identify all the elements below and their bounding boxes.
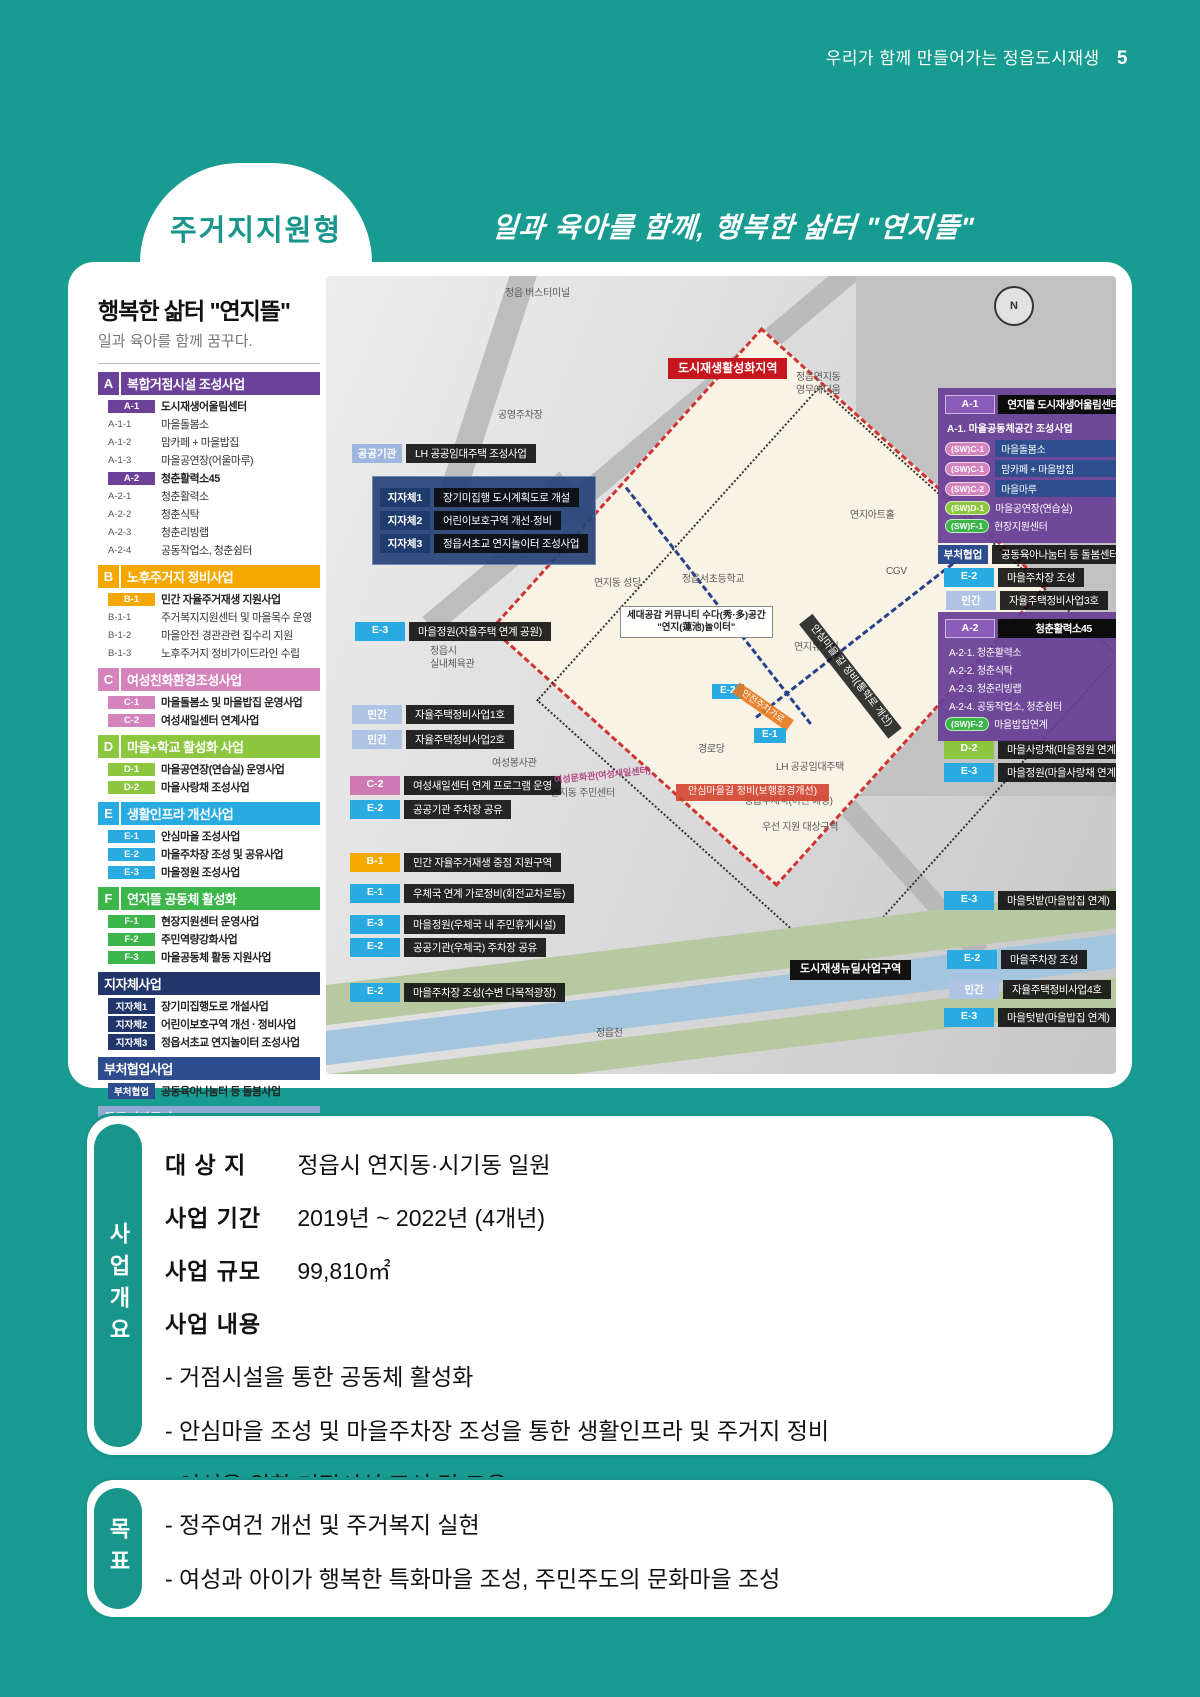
- map-callout: 공공기관LH 공공임대주택 조성사업: [352, 444, 536, 463]
- map-legend: 행복한 삶터 "연지뜰" 일과 육아를 함께 꿈꾸다. A복합거점시설 조성사업…: [98, 292, 320, 1204]
- map-callout: 지자체2어린이보호구역 개선·정비: [380, 511, 588, 530]
- legend-item-code: D-1: [108, 763, 155, 776]
- legend-item-code: B-1-3: [108, 648, 155, 659]
- legend-item-code: A-2-1: [108, 491, 155, 502]
- map-callout: 민간자율주택정비사업4호: [949, 980, 1111, 999]
- legend-item: E-2마을주차장 조성 및 공유사업: [108, 846, 320, 862]
- panel-item-pill: (SW)F-1: [945, 519, 989, 533]
- legend-section-letter: D: [98, 735, 119, 758]
- panel-item-label: 마을공연장(연습실): [995, 500, 1072, 515]
- legend-item: A-1-3마을공연장(어울마루): [108, 452, 320, 468]
- map-callout-label: 민간 자율주거재생 중점 지원구역: [404, 853, 561, 872]
- legend-divider: [98, 363, 320, 364]
- map-callout: E-2마을주차장 조성: [947, 950, 1087, 969]
- map-callout-code: E-2: [947, 950, 997, 969]
- legend-item: D-2마을사랑채 조성사업: [108, 779, 320, 795]
- legend-item-label: 마을돌봄소: [161, 416, 209, 432]
- legend-section-header: B노후주거지 정비사업: [98, 565, 320, 588]
- legend-item-code: F-3: [108, 951, 155, 964]
- map-label-plain: 공영주차장: [498, 410, 543, 423]
- overview-label: 사업 규모: [165, 1252, 277, 1286]
- overview-row-period: 사업 기간 2019년 ~ 2022년 (4개년): [165, 1199, 1083, 1233]
- legend-item: 부처협업공동육아나눔터 등 돌봄사업: [108, 1083, 320, 1099]
- panel-title: 연지뜰 도시재생어울림센터: [998, 395, 1116, 414]
- legend-item-code: C-1: [108, 696, 155, 709]
- legend-item-label: 노후주거지 정비가이드라인 수립: [161, 645, 300, 661]
- legend-section-letter: C: [98, 668, 119, 691]
- legend-item-label: 어린이보호구역 개선 · 정비사업: [161, 1016, 296, 1032]
- legend-item-code: 부처협업: [108, 1083, 155, 1099]
- legend-section-header: A복합거점시설 조성사업: [98, 372, 320, 395]
- legend-item-label: 마을사랑채 조성사업: [161, 779, 249, 795]
- overview-bullet: - 거점시설을 통한 공동체 활성화: [165, 1358, 1083, 1392]
- type-badge-label: 주거지지원형: [170, 207, 342, 249]
- map-callout: E-3마을텃밭(마을밥집 연계): [944, 891, 1116, 910]
- legend-item: B-1-2마을안전 경관관련 집수리 지원: [108, 627, 320, 643]
- legend-section-letter: A: [98, 372, 119, 395]
- map-label-plain: 여성봉사관: [492, 758, 537, 771]
- map-callout-label: 공공기관(우체국) 주차장 공유: [404, 938, 546, 957]
- legend-item: E-1안심마을 조성사업: [108, 828, 320, 844]
- page-number: 5: [1117, 48, 1128, 69]
- map-label-plain: 연지동 성당: [594, 578, 641, 591]
- tagline-script: 일과 육아를 함께, 행복한 삶터 "연지뜰": [491, 206, 976, 246]
- map-callout-code: E-3: [350, 915, 400, 934]
- page: { "page": { "header_title": "우리가 함께 만들어가…: [0, 0, 1200, 1697]
- project-overview-card: 사업개요 대 상 지 정읍시 연지동·시기동 일원 사업 기간 2019년 ~ …: [84, 1113, 1116, 1458]
- legend-item-label: 주거복지지원센터 및 마을목수 운영: [161, 609, 312, 625]
- legend-item-code: F-2: [108, 933, 155, 946]
- map-callout: E-3마을정원(우체국 내 주민휴게시설): [350, 915, 565, 934]
- legend-section: E생활인프라 개선사업E-1안심마을 조성사업E-2마을주차장 조성 및 공유사…: [98, 802, 320, 880]
- legend-section-title: 노후주거지 정비사업: [121, 565, 320, 588]
- map-callout-label: 마을사랑채(마을정원 연계): [998, 740, 1116, 759]
- compass-icon: N: [994, 286, 1034, 326]
- legend-item-code: A-1-2: [108, 437, 155, 448]
- map-callout-label: 자율주택정비사업1호: [406, 705, 514, 724]
- legend-item-label: 청춘활력소: [161, 488, 209, 504]
- page-header: 우리가 함께 만들어가는 정읍도시재생 5: [826, 44, 1128, 70]
- panel-item-label: 마을돌봄소: [995, 440, 1116, 457]
- map-callout: 민간자율주택정비사업3호: [946, 591, 1108, 610]
- goal-bullet: - 정주여건 개선 및 주거복지 실현: [165, 1506, 1083, 1540]
- map-callout-label: 자율주택정비사업3호: [1000, 591, 1108, 610]
- panel-header: A-2청춘활력소45: [945, 619, 1116, 638]
- map-callout-label: 우체국 연계 가로정비(회전교차로등): [404, 884, 574, 903]
- goal-tab-label: 목표: [102, 1517, 134, 1581]
- legend-item-code: C-2: [108, 714, 155, 727]
- legend-item-label: 청춘리빙랩: [161, 524, 209, 540]
- legend-item: A-2-2청춘식탁: [108, 506, 320, 522]
- legend-item-label: 마을주차장 조성 및 공유사업: [161, 846, 283, 862]
- legend-section: A복합거점시설 조성사업A-1도시재생어울림센터A-1-1마을돌봄소A-1-2맘…: [98, 372, 320, 558]
- legend-item-code: A-2-2: [108, 509, 155, 520]
- legend-item-label: 마을정원 조성사업: [161, 864, 240, 880]
- panel-item-pill: (SW)F-2: [945, 717, 989, 731]
- map-label-plain: 경로당: [698, 744, 725, 757]
- legend-section-title: 여성친화환경조성사업: [121, 668, 320, 691]
- panel-item-label: 맘카페 + 마을밥집: [995, 460, 1116, 477]
- map-label-plain: 정읍시 실내체육관: [430, 646, 475, 671]
- map-callout-label: 마을텃밭(마을밥집 연계): [998, 1008, 1116, 1027]
- map-label-plain: 연지아트홀: [850, 510, 895, 523]
- panel-subtitle: A-1. 마을공동체공간 조성사업: [947, 420, 1116, 435]
- map-label-plain: 정읍 버스터미널: [505, 288, 570, 301]
- legend-section-header: 부처협업사업: [98, 1057, 320, 1080]
- map-callout-label: 자율주택정비사업4호: [1003, 980, 1111, 999]
- overview-label: 대 상 지: [165, 1146, 277, 1180]
- legend-section-letter: F: [98, 887, 119, 910]
- legend-item-label: 정읍서초교 연지놀이터 조성사업: [161, 1034, 300, 1050]
- map-label-red: 도시재생활성화지역: [668, 358, 787, 379]
- legend-item-label: 청춘식탁: [161, 506, 199, 522]
- map-callout: 민간자율주택정비사업1호: [352, 705, 514, 724]
- panel-item-label: 마을마루: [995, 480, 1116, 497]
- map-label-plain: LH 공공임대주택: [776, 762, 844, 775]
- legend-item-label: 장기미집행도로 개설사업: [161, 998, 268, 1014]
- panel-item-line: A-2-2. 청춘식탁: [949, 662, 1116, 677]
- goal-bullets: - 정주여건 개선 및 주거복지 실현- 여성과 아이가 행복한 특화마을 조성…: [165, 1506, 1083, 1594]
- map-callout: 부처협업공동육아나눔터 등 돌봄센터: [938, 545, 1116, 564]
- goal-card: 목표 - 정주여건 개선 및 주거복지 실현- 여성과 아이가 행복한 특화마을…: [84, 1477, 1116, 1620]
- legend-section-header: 지자체사업: [98, 972, 320, 995]
- legend-item: F-1현장지원센터 운영사업: [108, 913, 320, 929]
- panel-item: (SW)F-1현장지원센터: [945, 518, 1116, 533]
- map-callout: E-3마을정원(자율주택 연계 공원): [355, 622, 551, 641]
- site-map: N 공공기관LH 공공임대주택 조성사업E-3마을정원(자율주택 연계 공원)민…: [326, 276, 1116, 1074]
- legend-item: A-2청춘활력소45: [108, 470, 320, 486]
- panel-a2: A-2청춘활력소45A-2-1. 청춘활력소A-2-2. 청춘식탁A-2-3. …: [938, 612, 1116, 741]
- legend-item-code: E-1: [108, 830, 155, 843]
- map-callout-label: 마을정원(마을사랑채 연계): [998, 763, 1116, 782]
- municipal-projects-box: 지자체1장기미집행 도시계획도로 개설지자체2어린이보호구역 개선·정비지자체3…: [372, 476, 596, 565]
- map-callout-label: 장기미집행 도시계획도로 개설: [434, 488, 579, 507]
- legend-section-title: 생활인프라 개선사업: [121, 802, 320, 825]
- legend-item: 지자체1장기미집행도로 개설사업: [108, 998, 320, 1014]
- map-callout-label: 여성새일센터 연계 프로그램 운영: [404, 776, 561, 795]
- legend-item-code: B-1-1: [108, 612, 155, 623]
- overview-row-scale: 사업 규모 99,810㎡: [165, 1252, 1083, 1286]
- panel-item-label: 현장지원센터: [994, 518, 1047, 533]
- legend-item: 지자체2어린이보호구역 개선 · 정비사업: [108, 1016, 320, 1032]
- legend-item-code: 지자체1: [108, 998, 155, 1014]
- legend-item-code: A-1-3: [108, 455, 155, 466]
- map-label-black: 도시재생뉴딜사업구역: [790, 960, 911, 980]
- legend-section-letter: E: [98, 802, 119, 825]
- legend-section: B노후주거지 정비사업B-1민간 자율주거재생 지원사업B-1-1주거복지지원센…: [98, 565, 320, 661]
- legend-sections: A복합거점시설 조성사업A-1도시재생어울림센터A-1-1마을돌봄소A-1-2맘…: [98, 372, 320, 1197]
- map-callout-code: 민간: [352, 730, 402, 749]
- map-callout-code: E-3: [355, 622, 405, 641]
- legend-item-code: 지자체2: [108, 1016, 155, 1032]
- legend-item-label: 공동육아나눔터 등 돌봄사업: [161, 1083, 281, 1099]
- overview-value: 99,810㎡: [297, 1258, 390, 1284]
- legend-item: A-1도시재생어울림센터: [108, 398, 320, 414]
- overview-label: 사업 내용: [165, 1305, 277, 1339]
- map-callout-label: 마을주차장 조성: [998, 568, 1084, 587]
- map-callout-code: 지자체3: [380, 534, 430, 553]
- panel-item: (SW)C-1맘카페 + 마을밥집: [945, 460, 1116, 477]
- legend-item: B-1-3노후주거지 정비가이드라인 수립: [108, 645, 320, 661]
- legend-item: A-1-1마을돌봄소: [108, 416, 320, 432]
- legend-section-header: C여성친화환경조성사업: [98, 668, 320, 691]
- legend-item: F-2주민역량강화사업: [108, 931, 320, 947]
- legend-item-label: 마을돌봄소 및 마을밥집 운영사업: [161, 694, 302, 710]
- legend-item-code: A-1: [108, 400, 155, 413]
- map-callout-code: C-2: [350, 776, 400, 795]
- legend-section-letter: B: [98, 565, 119, 588]
- map-callout-code: 민간: [949, 980, 999, 999]
- legend-section-title: 마을+학교 활성화 사업: [121, 735, 320, 758]
- map-label-plain: 정읍연지동 영무예디움: [796, 372, 841, 397]
- map-callout-code: 공공기관: [352, 444, 402, 463]
- legend-section-title: 연지뜰 공동체 활성화: [121, 887, 320, 910]
- map-callout: 지자체1장기미집행 도시계획도로 개설: [380, 488, 588, 507]
- panel-item: (SW)D-1마을공연장(연습실): [945, 500, 1116, 515]
- overview-value: 2019년 ~ 2022년 (4개년): [297, 1205, 545, 1231]
- goal-tab: 목표: [94, 1488, 142, 1609]
- map-callout-label: LH 공공임대주택 조성사업: [406, 444, 536, 463]
- legend-section: D마을+학교 활성화 사업D-1마을공연장(연습실) 운영사업D-2마을사랑채 …: [98, 735, 320, 795]
- overview-label: 사업 기간: [165, 1199, 277, 1233]
- legend-section-title: 복합거점시설 조성사업: [121, 372, 320, 395]
- legend-item: C-2여성새일센터 연계사업: [108, 712, 320, 728]
- map-callout: 지자체3정읍서초교 연지놀이터 조성사업: [380, 534, 588, 553]
- map-callout: C-2여성새일센터 연계 프로그램 운영: [350, 776, 561, 795]
- overview-body: 대 상 지 정읍시 연지동·시기동 일원 사업 기간 2019년 ~ 2022년…: [165, 1146, 1083, 1441]
- map-callout-label: 마을텃밭(마을밥집 연계): [998, 891, 1116, 910]
- legend-item-code: B-1: [108, 593, 155, 606]
- panel-item-line: A-2-4. 공동작업소, 청춘쉼터: [949, 698, 1116, 713]
- legend-item: A-2-1청춘활력소: [108, 488, 320, 504]
- map-callout-label: 어린이보호구역 개선·정비: [434, 511, 561, 530]
- overview-row-site: 대 상 지 정읍시 연지동·시기동 일원: [165, 1146, 1083, 1180]
- legend-item-code: A-2: [108, 472, 155, 485]
- map-callout-code: E-3: [944, 1008, 994, 1027]
- legend-section-header: F연지뜰 공동체 활성화: [98, 887, 320, 910]
- legend-item: A-1-2맘카페 + 마을밥집: [108, 434, 320, 450]
- panel-header: A-1연지뜰 도시재생어울림센터: [945, 395, 1116, 414]
- map-label-redbar: 안심마을길 정비(보행환경개선): [676, 784, 829, 801]
- legend-item-label: 마을안전 경관관련 집수리 지원: [161, 627, 293, 643]
- map-callout-label: 마을주차장 조성(수변 다목적광장): [404, 983, 565, 1002]
- panel-item: (SW)F-2마을밥집연계: [945, 716, 1116, 731]
- panel-a1: A-1연지뜰 도시재생어울림센터A-1. 마을공동체공간 조성사업(SW)C-1…: [938, 388, 1116, 543]
- legend-item: E-3마을정원 조성사업: [108, 864, 320, 880]
- legend-section-header: E생활인프라 개선사업: [98, 802, 320, 825]
- map-callout-code: E-3: [944, 891, 994, 910]
- legend-item-code: F-1: [108, 915, 155, 928]
- header-title: 우리가 함께 만들어가는 정읍도시재생: [826, 49, 1100, 68]
- legend-item-label: 청춘활력소45: [161, 470, 220, 486]
- panel-item: (SW)C-1마을돌봄소: [945, 440, 1116, 457]
- overview-row-content: 사업 내용: [165, 1305, 1083, 1339]
- legend-section: F연지뜰 공동체 활성화F-1현장지원센터 운영사업F-2주민역량강화사업F-3…: [98, 887, 320, 965]
- goal-body: - 정주여건 개선 및 주거복지 실현- 여성과 아이가 행복한 특화마을 조성…: [165, 1506, 1083, 1603]
- overview-bullet: - 안심마을 조성 및 마을주차장 조성을 통한 생활인프라 및 주거지 정비: [165, 1412, 1083, 1446]
- legend-subtitle: 일과 육아를 함께 꿈꾸다.: [98, 330, 320, 351]
- map-callout: D-2마을사랑채(마을정원 연계): [944, 740, 1116, 759]
- map-callout-code: 지자체2: [380, 511, 430, 530]
- map-callout: E-1우체국 연계 가로정비(회전교차로등): [350, 884, 574, 903]
- map-callout-code: E-2: [944, 568, 994, 587]
- legend-item: 지자체3정읍서초교 연지놀이터 조성사업: [108, 1034, 320, 1050]
- overview-value: 정읍시 연지동·시기동 일원: [297, 1152, 550, 1178]
- legend-item-label: 맘카페 + 마을밥집: [161, 434, 239, 450]
- legend-item-label: 마을공연장(어울마루): [161, 452, 253, 468]
- map-callout: E-2공공기관 주차장 공유: [350, 800, 511, 819]
- map-label-chip: E-1: [754, 728, 786, 743]
- legend-item-code: A-1-1: [108, 419, 155, 430]
- legend-section-title: 지자체사업: [98, 972, 320, 995]
- legend-section-title: 부처협업사업: [98, 1057, 320, 1080]
- panel-item-pill: (SW)D-1: [945, 501, 990, 515]
- legend-item-label: 주민역량강화사업: [161, 931, 237, 947]
- map-callout-label: 마을정원(우체국 내 주민휴게시설): [404, 915, 565, 934]
- legend-section: 지자체사업지자체1장기미집행도로 개설사업지자체2어린이보호구역 개선 · 정비…: [98, 972, 320, 1050]
- panel-item-pill: (SW)C-2: [945, 482, 990, 496]
- map-callout-code: 지자체1: [380, 488, 430, 507]
- panel-title: 청춘활력소45: [998, 619, 1116, 638]
- map-callout: E-2마을주차장 조성(수변 다목적광장): [350, 983, 565, 1002]
- map-callout-code: 부처협업: [938, 545, 988, 564]
- map-callout-label: 마을정원(자율주택 연계 공원): [409, 622, 551, 641]
- map-callout-code: D-2: [944, 740, 994, 759]
- goal-bullet: - 여성과 아이가 행복한 특화마을 조성, 주민주도의 문화마을 조성: [165, 1560, 1083, 1594]
- legend-item-label: 공동작업소, 청춘쉼터: [161, 542, 252, 558]
- legend-item-code: B-1-2: [108, 630, 155, 641]
- legend-item-label: 여성새일센터 연계사업: [161, 712, 259, 728]
- legend-item-code: 지자체3: [108, 1034, 155, 1050]
- legend-item-code: E-2: [108, 848, 155, 861]
- map-label-plain: CGV: [886, 566, 907, 579]
- map-card: 행복한 삶터 "연지뜰" 일과 육아를 함께 꿈꾸다. A복합거점시설 조성사업…: [68, 262, 1132, 1088]
- legend-item-label: 마을공동체 활동 지원사업: [161, 949, 271, 965]
- map-callout-code: E-3: [944, 763, 994, 782]
- map-callout-label: 공공기관 주차장 공유: [404, 800, 511, 819]
- overview-tab: 사업개요: [94, 1124, 142, 1447]
- legend-item-label: 도시재생어울림센터: [161, 398, 247, 414]
- legend-item-label: 민간 자율주거재생 지원사업: [161, 591, 281, 607]
- map-callout-code: E-2: [350, 938, 400, 957]
- legend-item-label: 마을공연장(연습실) 운영사업: [161, 761, 284, 777]
- panel-item-pill: (SW)C-1: [945, 442, 990, 456]
- legend-item-code: A-2-3: [108, 527, 155, 538]
- legend-item: B-1민간 자율주거재생 지원사업: [108, 591, 320, 607]
- legend-item: B-1-1주거복지지원센터 및 마을목수 운영: [108, 609, 320, 625]
- legend-title: 행복한 삶터 "연지뜰": [98, 292, 320, 326]
- panel-code: A-2: [945, 619, 995, 638]
- map-callout-code: E-2: [350, 800, 400, 819]
- legend-item: C-1마을돌봄소 및 마을밥집 운영사업: [108, 694, 320, 710]
- map-callout-label: 마을주차장 조성: [1001, 950, 1087, 969]
- panel-code: A-1: [945, 395, 995, 414]
- legend-section: 부처협업사업부처협업공동육아나눔터 등 돌봄사업: [98, 1057, 320, 1099]
- map-callout-code: E-1: [350, 884, 400, 903]
- map-callout: E-2마을주차장 조성: [944, 568, 1084, 587]
- map-callout: 민간자율주택정비사업2호: [352, 730, 514, 749]
- map-callout-code: E-2: [350, 983, 400, 1002]
- legend-item-label: 안심마을 조성사업: [161, 828, 240, 844]
- map-callout: E-2공공기관(우체국) 주차장 공유: [350, 938, 546, 957]
- legend-item: F-3마을공동체 활동 지원사업: [108, 949, 320, 965]
- map-callout: B-1민간 자율주거재생 중점 지원구역: [350, 853, 561, 872]
- legend-section-header: D마을+학교 활성화 사업: [98, 735, 320, 758]
- panel-item: (SW)C-2마을마루: [945, 480, 1116, 497]
- map-label-plain: 정읍서초등학교: [682, 574, 744, 587]
- map-callout: E-3마을정원(마을사랑채 연계): [944, 763, 1116, 782]
- panel-item-line: A-2-3. 청춘리빙랩: [949, 680, 1116, 695]
- legend-section: C여성친화환경조성사업C-1마을돌봄소 및 마을밥집 운영사업C-2여성새일센터…: [98, 668, 320, 728]
- type-badge: 주거지지원형: [140, 163, 372, 263]
- legend-item: D-1마을공연장(연습실) 운영사업: [108, 761, 320, 777]
- map-callout-code: 민간: [352, 705, 402, 724]
- legend-item-code: E-3: [108, 866, 155, 879]
- panel-item-label: 마을밥집연계: [994, 716, 1047, 731]
- map-callout-label: 정읍서초교 연지놀이터 조성사업: [434, 534, 588, 553]
- legend-item: A-2-4공동작업소, 청춘쉼터: [108, 542, 320, 558]
- map-callout-label: 자율주택정비사업2호: [406, 730, 514, 749]
- legend-item-code: D-2: [108, 781, 155, 794]
- panel-item-line: A-2-1. 청춘활력소: [949, 644, 1116, 659]
- panel-item-pill: (SW)C-1: [945, 462, 990, 476]
- overview-tab-label: 사업개요: [102, 1222, 134, 1350]
- map-callout: E-3마을텃밭(마을밥집 연계): [944, 1008, 1116, 1027]
- legend-item-label: 현장지원센터 운영사업: [161, 913, 259, 929]
- map-callout-label: 공동육아나눔터 등 돌봄센터: [992, 545, 1116, 564]
- legend-item: A-2-3청춘리빙랩: [108, 524, 320, 540]
- map-callout-code: 민간: [946, 591, 996, 610]
- map-callout-code: B-1: [350, 853, 400, 872]
- legend-item-code: A-2-4: [108, 545, 155, 556]
- map-label-white: 세대공감 커뮤니티 수다(秀·多)공간 "연지(蓮池)놀이터": [620, 606, 773, 638]
- map-label-plain: 정읍천: [596, 1028, 623, 1041]
- map-label-plain: 우선 지원 대상구역: [762, 822, 838, 835]
